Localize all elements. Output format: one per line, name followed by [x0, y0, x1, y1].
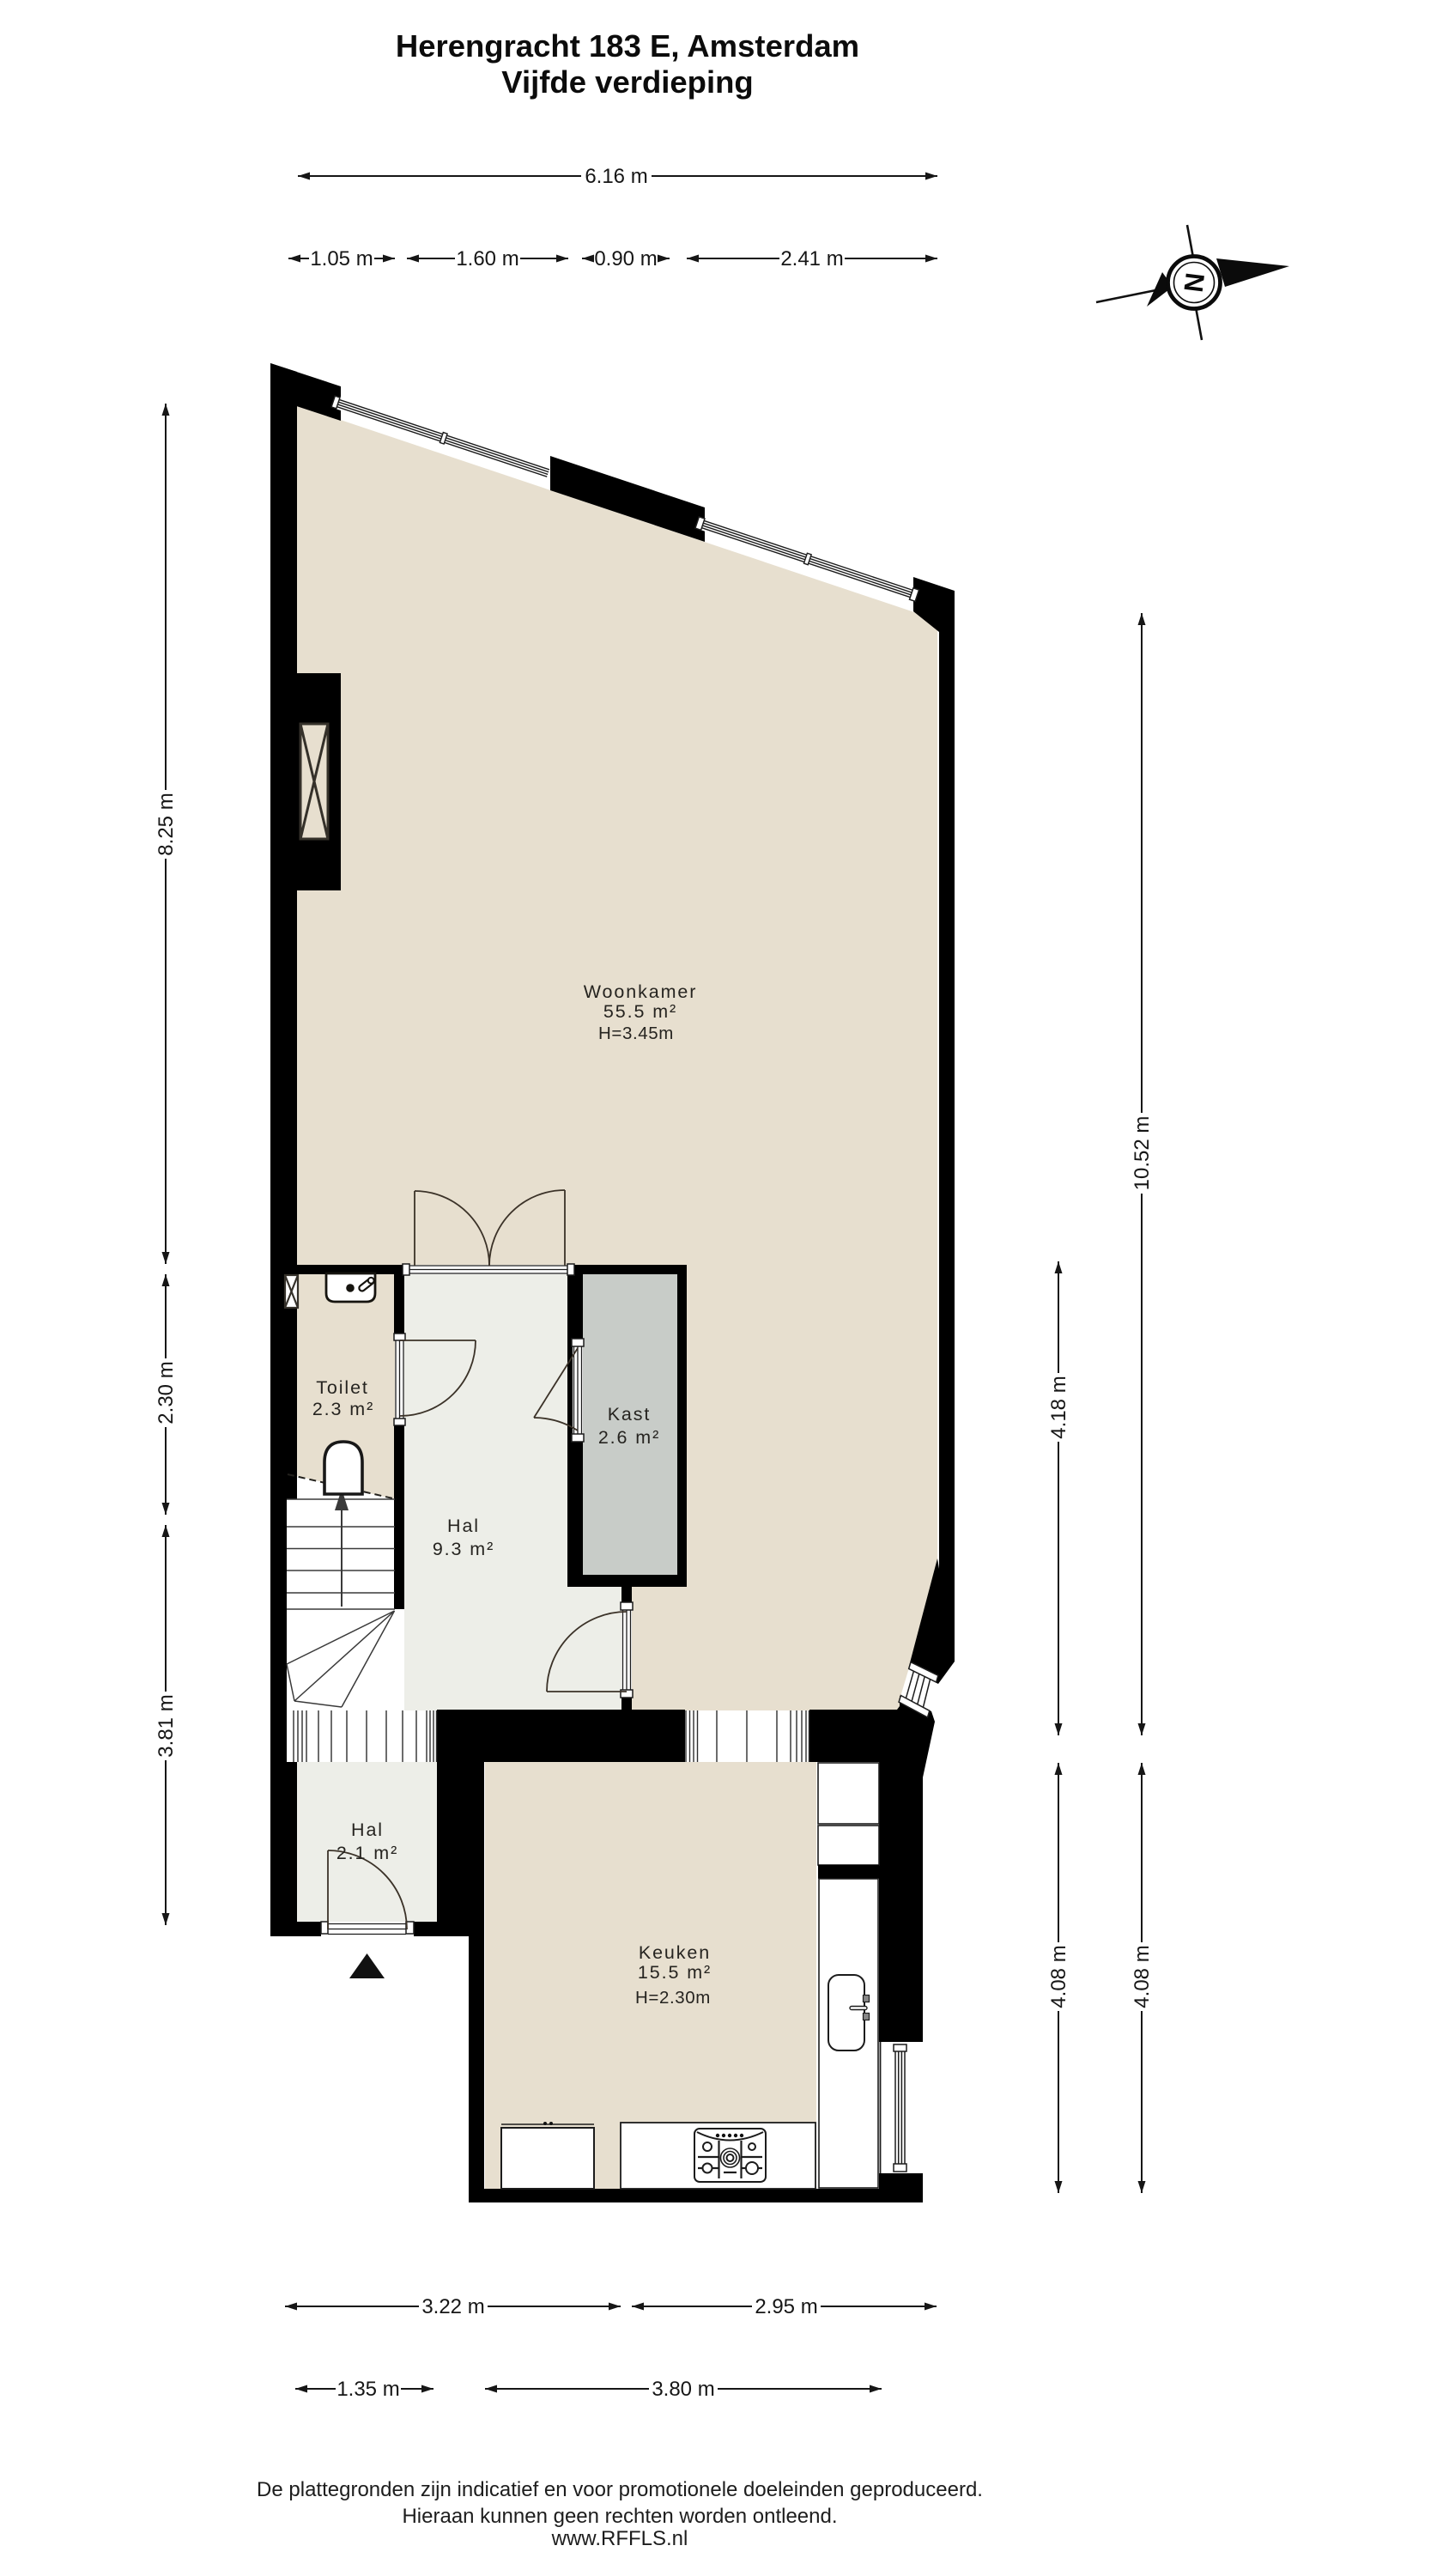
svg-text:Herengracht 183 E, Amsterdam: Herengracht 183 E, Amsterdam	[396, 28, 859, 64]
svg-text:Hal: Hal	[351, 1820, 384, 1840]
svg-text:4.18 m: 4.18 m	[1047, 1376, 1070, 1438]
svg-text:De plattegronden zijn indicati: De plattegronden zijn indicatief en voor…	[257, 2478, 983, 2501]
svg-text:0.90 m: 0.90 m	[594, 247, 657, 270]
svg-text:3.22 m: 3.22 m	[421, 2295, 484, 2318]
svg-text:3.80 m: 3.80 m	[652, 2378, 714, 2401]
svg-text:1.05 m: 1.05 m	[310, 247, 373, 270]
svg-text:3.81 m: 3.81 m	[155, 1694, 178, 1757]
svg-text:Hieraan kunnen geen rechten wo: Hieraan kunnen geen rechten worden ontle…	[402, 2505, 837, 2528]
svg-text:10.52 m: 10.52 m	[1131, 1116, 1154, 1191]
svg-text:4.08 m: 4.08 m	[1047, 1945, 1070, 2008]
svg-text:Vijfde verdieping: Vijfde verdieping	[501, 64, 753, 100]
svg-text:Kast: Kast	[608, 1404, 652, 1425]
svg-text:15.5 m²: 15.5 m²	[638, 1962, 712, 1983]
svg-text:9.3 m²: 9.3 m²	[433, 1539, 494, 1559]
svg-text:2.30 m: 2.30 m	[155, 1361, 178, 1424]
svg-text:2.41 m: 2.41 m	[780, 247, 843, 270]
svg-text:8.25 m: 8.25 m	[155, 793, 178, 855]
svg-text:Woonkamer: Woonkamer	[584, 981, 698, 1002]
svg-text:Toilet: Toilet	[316, 1377, 369, 1398]
svg-text:6.16 m: 6.16 m	[585, 165, 647, 188]
svg-text:N: N	[1178, 271, 1210, 294]
svg-text:2.95 m: 2.95 m	[755, 2295, 817, 2318]
svg-text:1.35 m: 1.35 m	[336, 2378, 399, 2401]
svg-text:4.08 m: 4.08 m	[1131, 1945, 1154, 2008]
svg-text:H=2.30m: H=2.30m	[635, 1988, 711, 2008]
svg-text:2.1 m²: 2.1 m²	[336, 1843, 398, 1863]
svg-text:H=3.45m: H=3.45m	[598, 1024, 674, 1043]
svg-text:Hal: Hal	[447, 1516, 480, 1536]
svg-text:www.RFFLS.nl: www.RFFLS.nl	[551, 2527, 688, 2550]
svg-text:55.5 m²: 55.5 m²	[603, 1001, 677, 1022]
svg-text:Keuken: Keuken	[639, 1942, 711, 1963]
svg-text:2.3 m²: 2.3 m²	[312, 1399, 374, 1419]
svg-text:1.60 m: 1.60 m	[456, 247, 518, 270]
svg-text:2.6 m²: 2.6 m²	[598, 1427, 660, 1448]
